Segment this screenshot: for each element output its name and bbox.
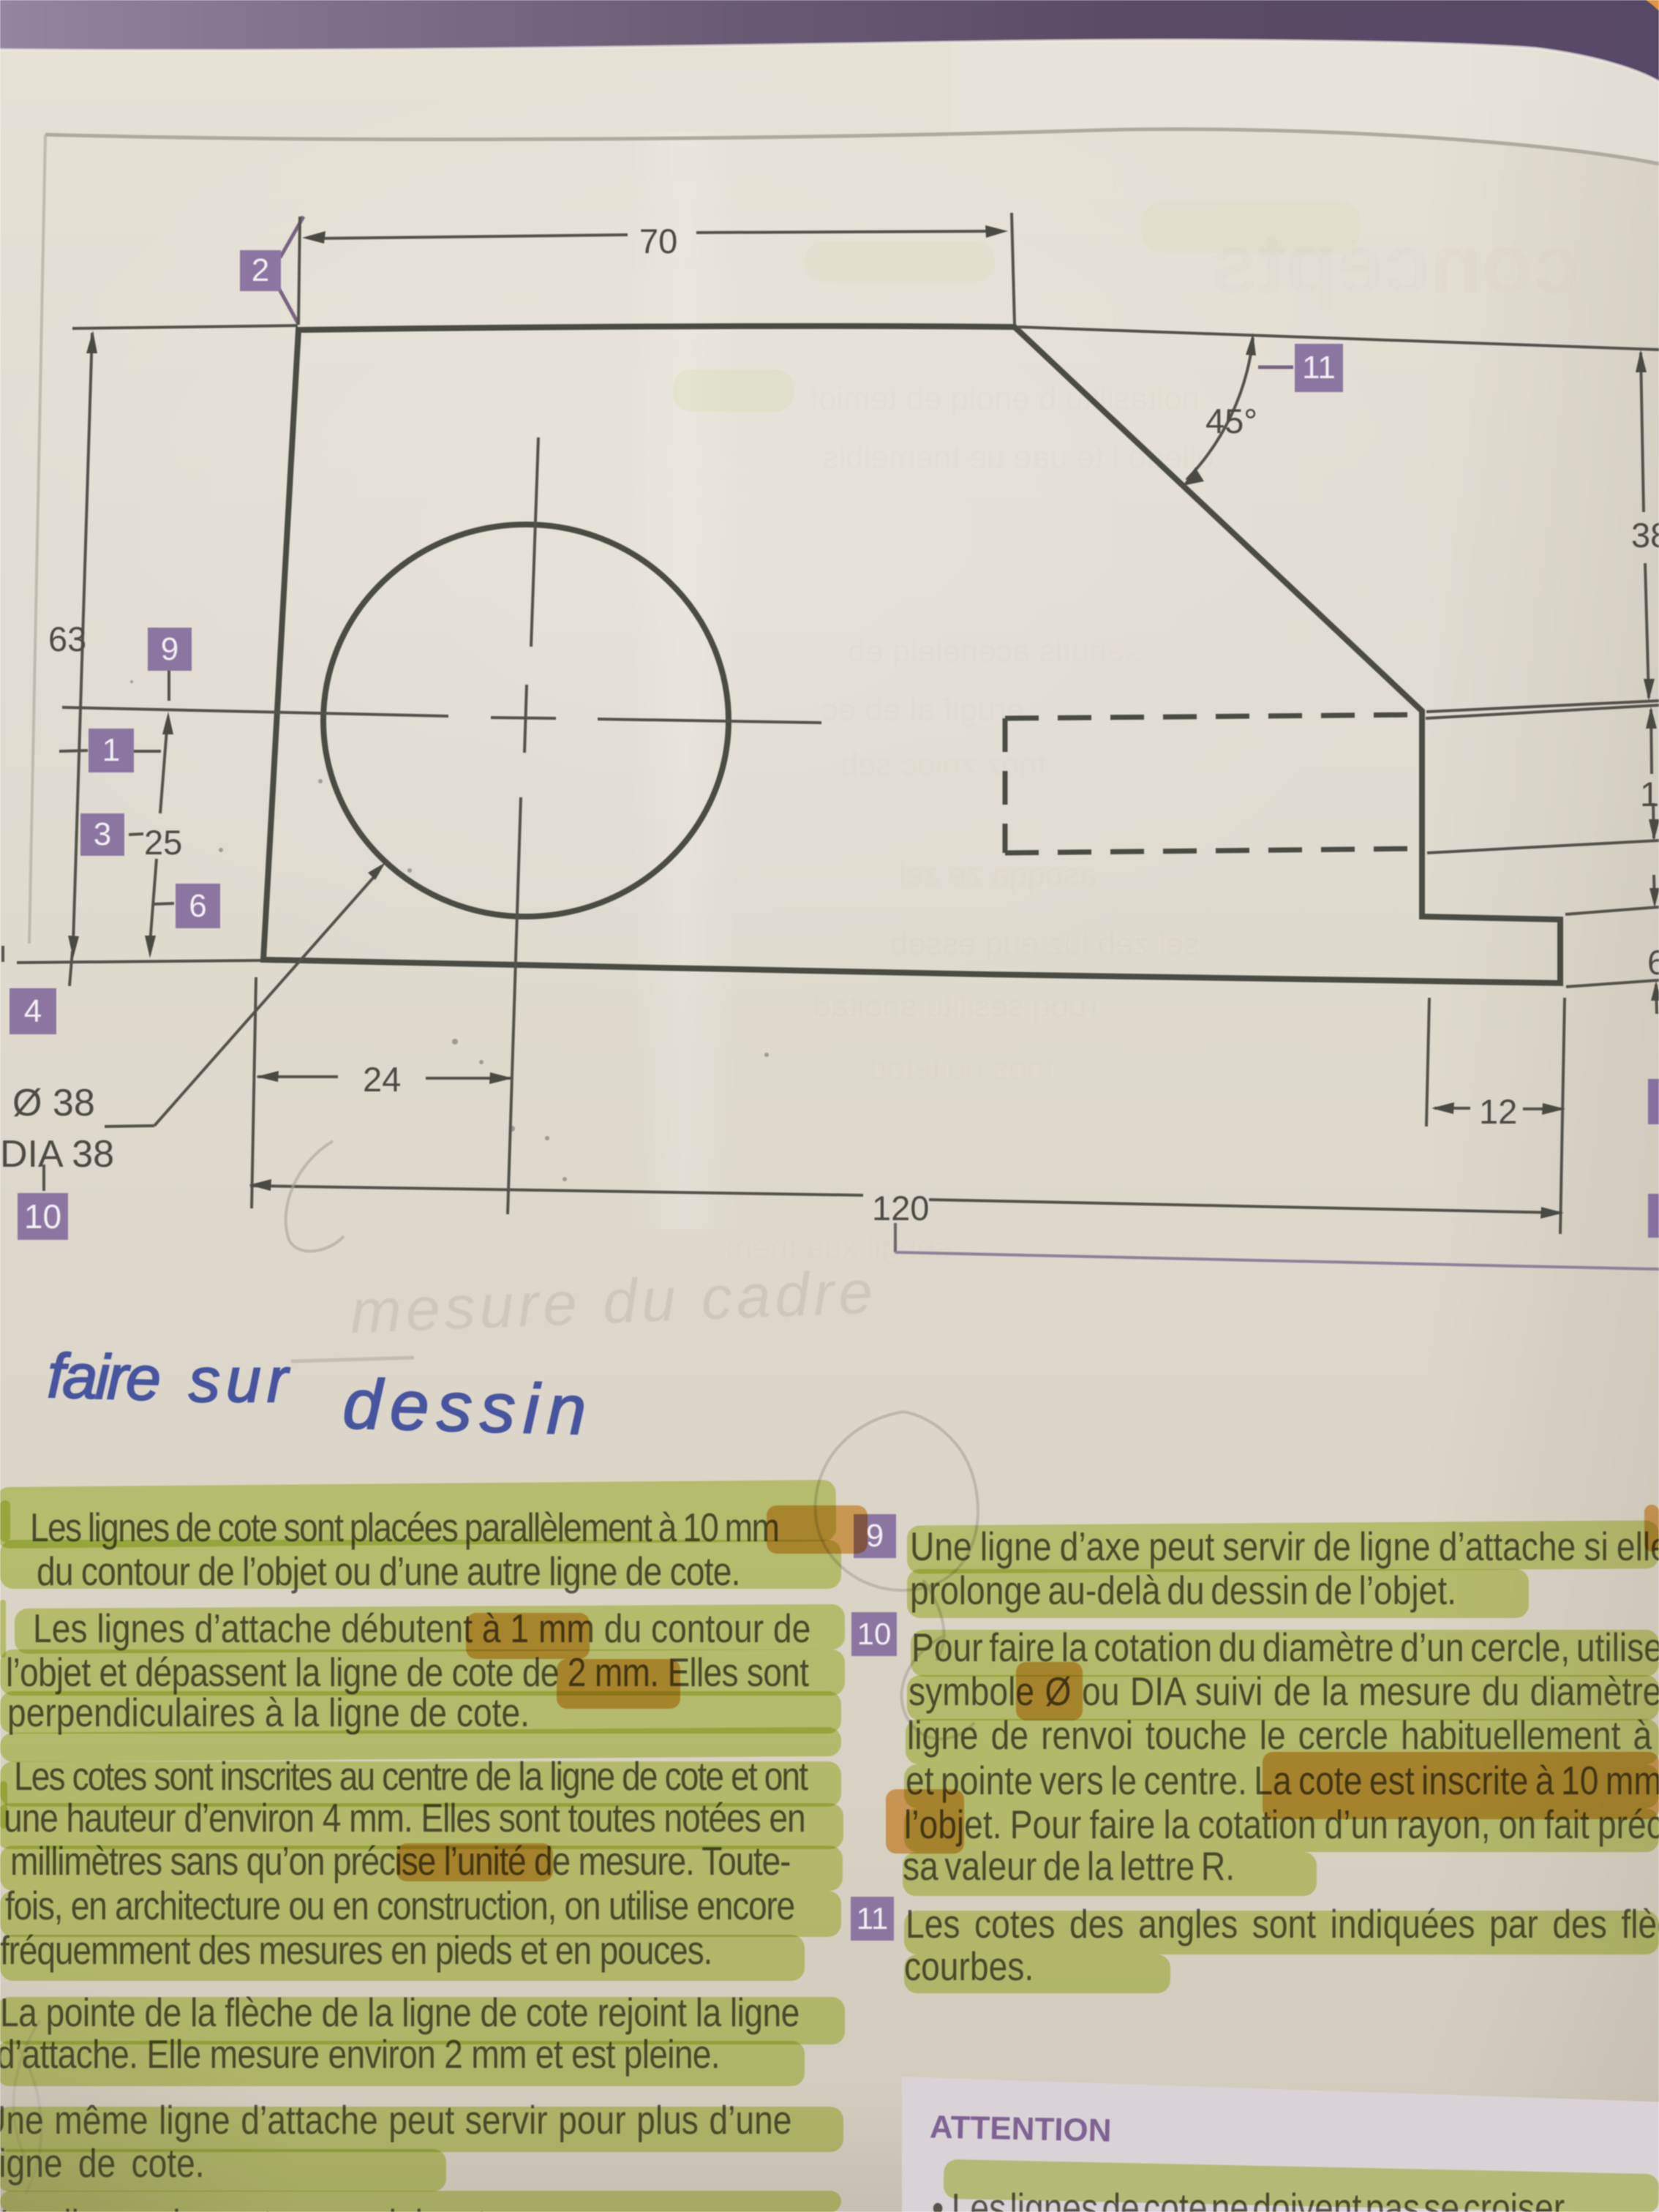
svg-text:sur: sur bbox=[189, 1345, 293, 1415]
svg-text:dessin: dessin bbox=[342, 1365, 595, 1450]
svg-text:faire: faire bbox=[47, 1341, 160, 1414]
svg-text:mesure du cadre: mesure du cadre bbox=[349, 1257, 878, 1346]
